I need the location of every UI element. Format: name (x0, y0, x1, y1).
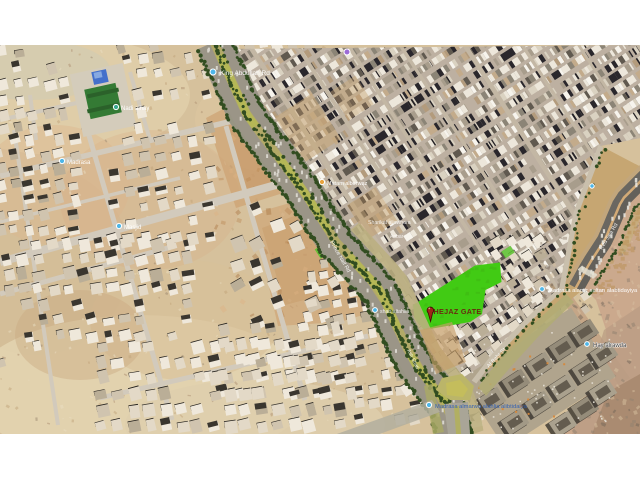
svg-text:Anbar: Anbar (390, 234, 404, 240)
svg-text:Hay alrawda: Hay alrawda (593, 343, 627, 349)
svg-text:King Abdullah Rd: King Abdullah Rd (220, 70, 270, 77)
svg-text:Madrasa almarwa alahlia alibti: Madrasa almarwa alahlia alibtidaiya (435, 404, 528, 410)
svg-text:Nadi alhay: Nadi alhay (121, 106, 149, 112)
svg-text:shari altahlia: shari altahlia (380, 309, 409, 315)
svg-text:Masjid: Masjid (124, 225, 141, 231)
svg-text:Sharikat aljawhara: Sharikat aljawhara (368, 220, 411, 226)
svg-text:Madrasa alamir sultan alabtida: Madrasa alamir sultan alabtidayiya (548, 288, 638, 294)
svg-text:Matam alberwaz: Matam alberwaz (327, 181, 368, 187)
svg-text:HEJAZ GATE: HEJAZ GATE (434, 307, 482, 316)
svg-text:Madrasa: Madrasa (67, 160, 91, 166)
